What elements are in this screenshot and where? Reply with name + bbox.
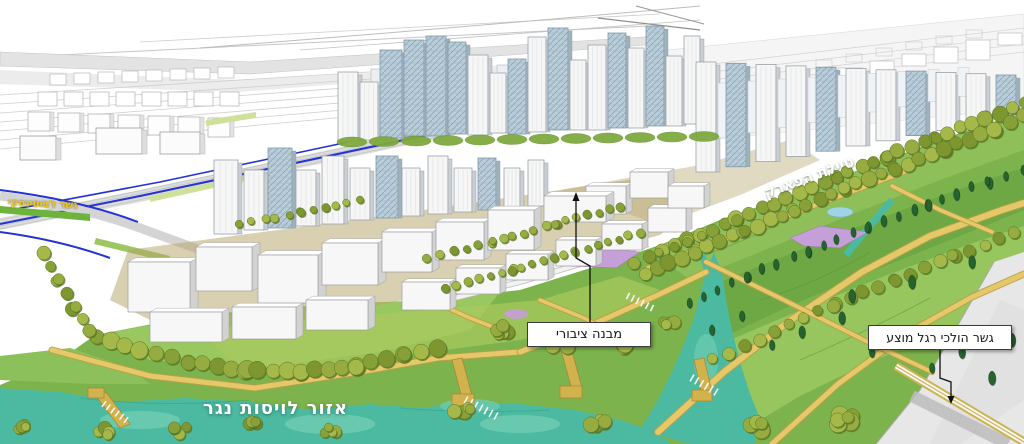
public-building-callout: מבנה ציבורי bbox=[527, 322, 651, 347]
public-building-label: מבנה ציבורי bbox=[556, 327, 622, 342]
masterplan-rendering: מבנה ציבורי גשר הולכי רגל מוצע אזור לויס… bbox=[0, 0, 1024, 444]
3d-city-park-illustration bbox=[0, 0, 1024, 444]
runoff-area-label: אזור לויסות נגר bbox=[203, 398, 348, 419]
pedestrian-bridge-callout: גשר הולכי רגל מוצע bbox=[868, 325, 1012, 350]
pedestrian-bridge-label: גשר הולכי רגל מוצע bbox=[886, 330, 994, 345]
